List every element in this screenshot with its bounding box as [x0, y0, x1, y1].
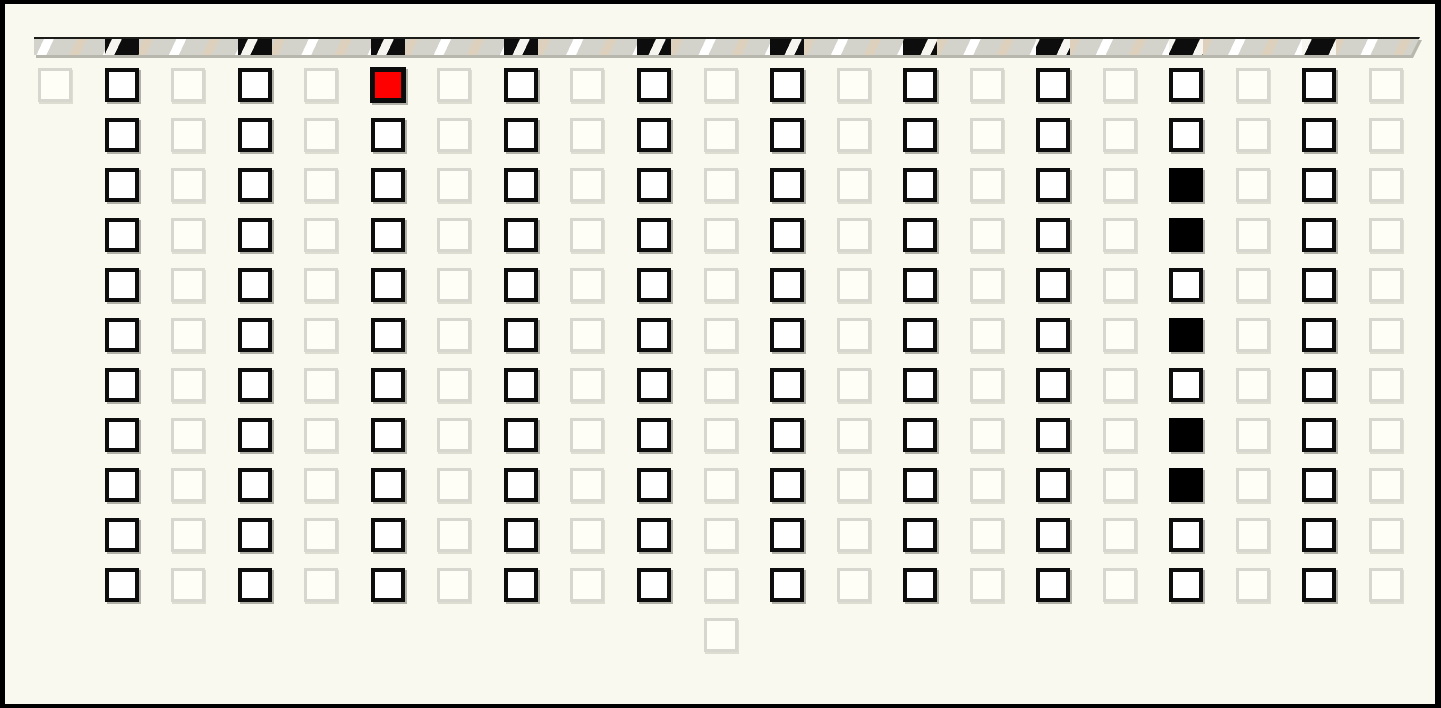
empty-active-cell[interactable] — [238, 568, 272, 602]
empty-light-cell[interactable] — [970, 68, 1004, 102]
empty-light-cell[interactable] — [1369, 468, 1403, 502]
empty-active-cell[interactable] — [1302, 468, 1336, 502]
empty-active-cell[interactable] — [1036, 418, 1070, 452]
hazard-strip — [34, 37, 1420, 55]
empty-light-cell[interactable] — [837, 118, 871, 152]
empty-light-cell[interactable] — [1369, 318, 1403, 352]
empty-active-cell[interactable] — [105, 368, 139, 402]
empty-light-cell[interactable] — [1369, 118, 1403, 152]
filled-black-cell[interactable] — [1169, 218, 1203, 252]
empty-active-cell[interactable] — [1302, 318, 1336, 352]
empty-light-cell[interactable] — [1103, 68, 1137, 102]
empty-active-cell[interactable] — [1302, 118, 1336, 152]
empty-active-cell[interactable] — [105, 568, 139, 602]
hazard-strip-segment — [637, 39, 671, 55]
empty-light-cell[interactable] — [437, 468, 471, 502]
empty-active-cell[interactable] — [770, 468, 804, 502]
empty-active-cell[interactable] — [238, 518, 272, 552]
empty-active-cell[interactable] — [238, 418, 272, 452]
empty-active-cell[interactable] — [371, 518, 405, 552]
empty-active-cell[interactable] — [238, 68, 272, 102]
empty-light-cell[interactable] — [570, 118, 604, 152]
empty-active-cell[interactable] — [105, 518, 139, 552]
empty-light-cell[interactable] — [304, 68, 338, 102]
empty-light-cell[interactable] — [1103, 368, 1137, 402]
empty-active-cell[interactable] — [371, 568, 405, 602]
empty-active-cell[interactable] — [903, 68, 937, 102]
empty-light-cell[interactable] — [704, 168, 738, 202]
hazard-strip-wrapper — [34, 37, 1420, 57]
empty-light-cell[interactable] — [171, 218, 205, 252]
empty-active-cell[interactable] — [770, 368, 804, 402]
empty-active-cell[interactable] — [1169, 518, 1203, 552]
empty-light-cell[interactable] — [704, 518, 738, 552]
empty-light-cell[interactable] — [1236, 118, 1270, 152]
empty-light-cell[interactable] — [970, 518, 1004, 552]
empty-active-cell[interactable] — [1169, 68, 1203, 102]
empty-active-cell[interactable] — [1036, 68, 1070, 102]
empty-light-cell[interactable] — [171, 568, 205, 602]
empty-active-cell[interactable] — [105, 418, 139, 452]
empty-active-cell[interactable] — [105, 468, 139, 502]
hazard-strip-segment — [105, 39, 139, 55]
empty-active-cell[interactable] — [1169, 368, 1203, 402]
empty-active-cell[interactable] — [1302, 168, 1336, 202]
empty-light-cell[interactable] — [570, 368, 604, 402]
empty-active-cell[interactable] — [504, 218, 538, 252]
empty-active-cell[interactable] — [371, 168, 405, 202]
empty-light-cell[interactable] — [304, 318, 338, 352]
empty-active-cell[interactable] — [238, 268, 272, 302]
empty-light-cell[interactable] — [1103, 268, 1137, 302]
empty-active-cell[interactable] — [105, 118, 139, 152]
empty-active-cell[interactable] — [770, 418, 804, 452]
empty-active-cell[interactable] — [504, 118, 538, 152]
empty-light-cell[interactable] — [437, 268, 471, 302]
empty-active-cell[interactable] — [105, 268, 139, 302]
empty-light-cell[interactable] — [1236, 418, 1270, 452]
empty-light-cell[interactable] — [1236, 218, 1270, 252]
empty-light-cell[interactable] — [171, 468, 205, 502]
empty-light-cell[interactable] — [570, 318, 604, 352]
hazard-strip-segment — [1302, 39, 1336, 55]
empty-light-cell[interactable] — [1236, 168, 1270, 202]
empty-light-cell[interactable] — [171, 68, 205, 102]
empty-light-cell[interactable] — [304, 218, 338, 252]
empty-active-cell[interactable] — [504, 318, 538, 352]
empty-active-cell[interactable] — [504, 268, 538, 302]
hazard-strip-segment — [371, 39, 405, 55]
empty-active-cell[interactable] — [105, 318, 139, 352]
empty-light-cell[interactable] — [38, 68, 72, 102]
empty-light-cell[interactable] — [970, 318, 1004, 352]
empty-active-cell[interactable] — [504, 168, 538, 202]
empty-active-cell[interactable] — [637, 318, 671, 352]
empty-light-cell[interactable] — [1103, 218, 1137, 252]
empty-active-cell[interactable] — [903, 218, 937, 252]
empty-active-cell[interactable] — [371, 318, 405, 352]
empty-light-cell[interactable] — [304, 268, 338, 302]
hazard-strip-segment — [238, 39, 272, 55]
hazard-strip-segment — [903, 39, 937, 55]
filled-black-cell[interactable] — [1169, 318, 1203, 352]
empty-active-cell[interactable] — [371, 418, 405, 452]
hazard-strip-segment — [1036, 39, 1070, 55]
empty-light-cell[interactable] — [437, 68, 471, 102]
empty-active-cell[interactable] — [770, 518, 804, 552]
empty-light-cell[interactable] — [1103, 468, 1137, 502]
empty-active-cell[interactable] — [105, 68, 139, 102]
empty-active-cell[interactable] — [1036, 168, 1070, 202]
empty-light-cell[interactable] — [837, 168, 871, 202]
empty-active-cell[interactable] — [504, 468, 538, 502]
empty-active-cell[interactable] — [1302, 568, 1336, 602]
empty-light-cell[interactable] — [304, 168, 338, 202]
empty-light-cell[interactable] — [304, 368, 338, 402]
empty-light-cell[interactable] — [570, 518, 604, 552]
empty-light-cell[interactable] — [837, 368, 871, 402]
empty-active-cell[interactable] — [105, 218, 139, 252]
empty-light-cell[interactable] — [1236, 568, 1270, 602]
empty-light-cell[interactable] — [1369, 418, 1403, 452]
empty-light-cell[interactable] — [570, 68, 604, 102]
empty-light-cell[interactable] — [704, 118, 738, 152]
empty-active-cell[interactable] — [371, 468, 405, 502]
empty-active-cell[interactable] — [1169, 118, 1203, 152]
empty-active-cell[interactable] — [1036, 318, 1070, 352]
empty-light-cell[interactable] — [1236, 268, 1270, 302]
empty-light-cell[interactable] — [704, 368, 738, 402]
empty-active-cell[interactable] — [238, 218, 272, 252]
empty-active-cell[interactable] — [770, 218, 804, 252]
empty-active-cell[interactable] — [903, 318, 937, 352]
empty-light-cell[interactable] — [1103, 518, 1137, 552]
empty-light-cell[interactable] — [570, 268, 604, 302]
empty-light-cell[interactable] — [970, 468, 1004, 502]
empty-active-cell[interactable] — [1302, 368, 1336, 402]
empty-active-cell[interactable] — [1036, 218, 1070, 252]
empty-active-cell[interactable] — [238, 168, 272, 202]
empty-active-cell[interactable] — [1036, 368, 1070, 402]
empty-active-cell[interactable] — [637, 268, 671, 302]
empty-active-cell[interactable] — [903, 468, 937, 502]
empty-active-cell[interactable] — [1169, 568, 1203, 602]
filled-black-cell[interactable] — [1169, 468, 1203, 502]
empty-light-cell[interactable] — [570, 418, 604, 452]
empty-light-cell[interactable] — [437, 418, 471, 452]
empty-active-cell[interactable] — [371, 218, 405, 252]
empty-active-cell[interactable] — [504, 368, 538, 402]
empty-active-cell[interactable] — [238, 118, 272, 152]
empty-active-cell[interactable] — [770, 568, 804, 602]
empty-light-cell[interactable] — [704, 318, 738, 352]
empty-active-cell[interactable] — [770, 268, 804, 302]
empty-active-cell[interactable] — [371, 268, 405, 302]
empty-light-cell[interactable] — [837, 418, 871, 452]
empty-light-cell[interactable] — [837, 568, 871, 602]
empty-active-cell[interactable] — [1302, 218, 1336, 252]
empty-light-cell[interactable] — [1369, 518, 1403, 552]
empty-light-cell[interactable] — [1369, 68, 1403, 102]
empty-active-cell[interactable] — [504, 418, 538, 452]
empty-active-cell[interactable] — [504, 568, 538, 602]
empty-light-cell[interactable] — [1103, 118, 1137, 152]
empty-light-cell[interactable] — [837, 518, 871, 552]
empty-light-cell[interactable] — [437, 568, 471, 602]
empty-active-cell[interactable] — [637, 218, 671, 252]
empty-light-cell[interactable] — [704, 568, 738, 602]
empty-light-cell[interactable] — [437, 318, 471, 352]
empty-light-cell[interactable] — [570, 468, 604, 502]
empty-active-cell[interactable] — [1036, 568, 1070, 602]
empty-active-cell[interactable] — [1302, 418, 1336, 452]
empty-active-cell[interactable] — [903, 518, 937, 552]
empty-light-cell[interactable] — [304, 568, 338, 602]
empty-light-cell[interactable] — [437, 518, 471, 552]
empty-light-cell[interactable] — [171, 318, 205, 352]
empty-light-cell[interactable] — [1369, 218, 1403, 252]
empty-light-cell[interactable] — [1103, 168, 1137, 202]
empty-active-cell[interactable] — [1169, 268, 1203, 302]
empty-light-cell[interactable] — [171, 418, 205, 452]
empty-active-cell[interactable] — [504, 518, 538, 552]
empty-active-cell[interactable] — [637, 68, 671, 102]
empty-active-cell[interactable] — [371, 368, 405, 402]
empty-light-cell[interactable] — [1369, 568, 1403, 602]
empty-light-cell[interactable] — [704, 618, 738, 652]
empty-active-cell[interactable] — [1302, 68, 1336, 102]
selected-red-cell[interactable] — [370, 67, 406, 103]
empty-light-cell[interactable] — [1236, 468, 1270, 502]
empty-active-cell[interactable] — [903, 368, 937, 402]
empty-light-cell[interactable] — [837, 68, 871, 102]
empty-light-cell[interactable] — [970, 218, 1004, 252]
empty-light-cell[interactable] — [437, 168, 471, 202]
empty-light-cell[interactable] — [1236, 318, 1270, 352]
empty-active-cell[interactable] — [238, 468, 272, 502]
empty-active-cell[interactable] — [637, 418, 671, 452]
empty-light-cell[interactable] — [1236, 518, 1270, 552]
empty-light-cell[interactable] — [970, 118, 1004, 152]
empty-active-cell[interactable] — [770, 68, 804, 102]
empty-light-cell[interactable] — [437, 118, 471, 152]
hazard-strip-segment — [1169, 39, 1203, 55]
empty-light-cell[interactable] — [570, 168, 604, 202]
empty-light-cell[interactable] — [704, 418, 738, 452]
empty-active-cell[interactable] — [1036, 118, 1070, 152]
empty-light-cell[interactable] — [837, 218, 871, 252]
empty-light-cell[interactable] — [1103, 318, 1137, 352]
empty-light-cell[interactable] — [837, 318, 871, 352]
empty-light-cell[interactable] — [704, 468, 738, 502]
empty-active-cell[interactable] — [770, 118, 804, 152]
empty-active-cell[interactable] — [371, 118, 405, 152]
empty-light-cell[interactable] — [704, 268, 738, 302]
empty-active-cell[interactable] — [1302, 518, 1336, 552]
empty-light-cell[interactable] — [1236, 368, 1270, 402]
empty-light-cell[interactable] — [970, 418, 1004, 452]
empty-light-cell[interactable] — [704, 68, 738, 102]
empty-active-cell[interactable] — [903, 418, 937, 452]
empty-light-cell[interactable] — [171, 368, 205, 402]
empty-active-cell[interactable] — [105, 168, 139, 202]
empty-light-cell[interactable] — [1369, 168, 1403, 202]
empty-light-cell[interactable] — [1369, 268, 1403, 302]
empty-light-cell[interactable] — [171, 268, 205, 302]
empty-active-cell[interactable] — [903, 168, 937, 202]
empty-active-cell[interactable] — [1036, 268, 1070, 302]
empty-active-cell[interactable] — [1302, 268, 1336, 302]
empty-active-cell[interactable] — [770, 168, 804, 202]
empty-light-cell[interactable] — [970, 268, 1004, 302]
empty-light-cell[interactable] — [437, 368, 471, 402]
empty-active-cell[interactable] — [637, 568, 671, 602]
empty-active-cell[interactable] — [637, 518, 671, 552]
empty-light-cell[interactable] — [171, 518, 205, 552]
empty-active-cell[interactable] — [903, 568, 937, 602]
empty-light-cell[interactable] — [171, 118, 205, 152]
empty-light-cell[interactable] — [704, 218, 738, 252]
empty-light-cell[interactable] — [304, 118, 338, 152]
empty-light-cell[interactable] — [970, 368, 1004, 402]
empty-active-cell[interactable] — [637, 118, 671, 152]
empty-active-cell[interactable] — [637, 468, 671, 502]
empty-active-cell[interactable] — [1036, 468, 1070, 502]
empty-light-cell[interactable] — [171, 168, 205, 202]
panel-frame — [0, 0, 1441, 708]
empty-active-cell[interactable] — [637, 368, 671, 402]
empty-active-cell[interactable] — [1036, 518, 1070, 552]
hazard-strip-segment — [770, 39, 804, 55]
empty-light-cell[interactable] — [837, 268, 871, 302]
empty-light-cell[interactable] — [304, 518, 338, 552]
empty-light-cell[interactable] — [837, 468, 871, 502]
empty-active-cell[interactable] — [504, 68, 538, 102]
empty-light-cell[interactable] — [304, 468, 338, 502]
empty-light-cell[interactable] — [570, 568, 604, 602]
filled-black-cell[interactable] — [1169, 168, 1203, 202]
empty-light-cell[interactable] — [437, 218, 471, 252]
empty-light-cell[interactable] — [970, 568, 1004, 602]
empty-active-cell[interactable] — [238, 368, 272, 402]
empty-light-cell[interactable] — [1103, 568, 1137, 602]
empty-active-cell[interactable] — [637, 168, 671, 202]
empty-light-cell[interactable] — [570, 218, 604, 252]
empty-light-cell[interactable] — [970, 168, 1004, 202]
empty-light-cell[interactable] — [304, 418, 338, 452]
filled-black-cell[interactable] — [1169, 418, 1203, 452]
empty-active-cell[interactable] — [770, 318, 804, 352]
empty-active-cell[interactable] — [903, 268, 937, 302]
empty-active-cell[interactable] — [903, 118, 937, 152]
empty-active-cell[interactable] — [238, 318, 272, 352]
empty-light-cell[interactable] — [1236, 68, 1270, 102]
empty-light-cell[interactable] — [1369, 368, 1403, 402]
hazard-strip-segment — [504, 39, 538, 55]
empty-light-cell[interactable] — [1103, 418, 1137, 452]
